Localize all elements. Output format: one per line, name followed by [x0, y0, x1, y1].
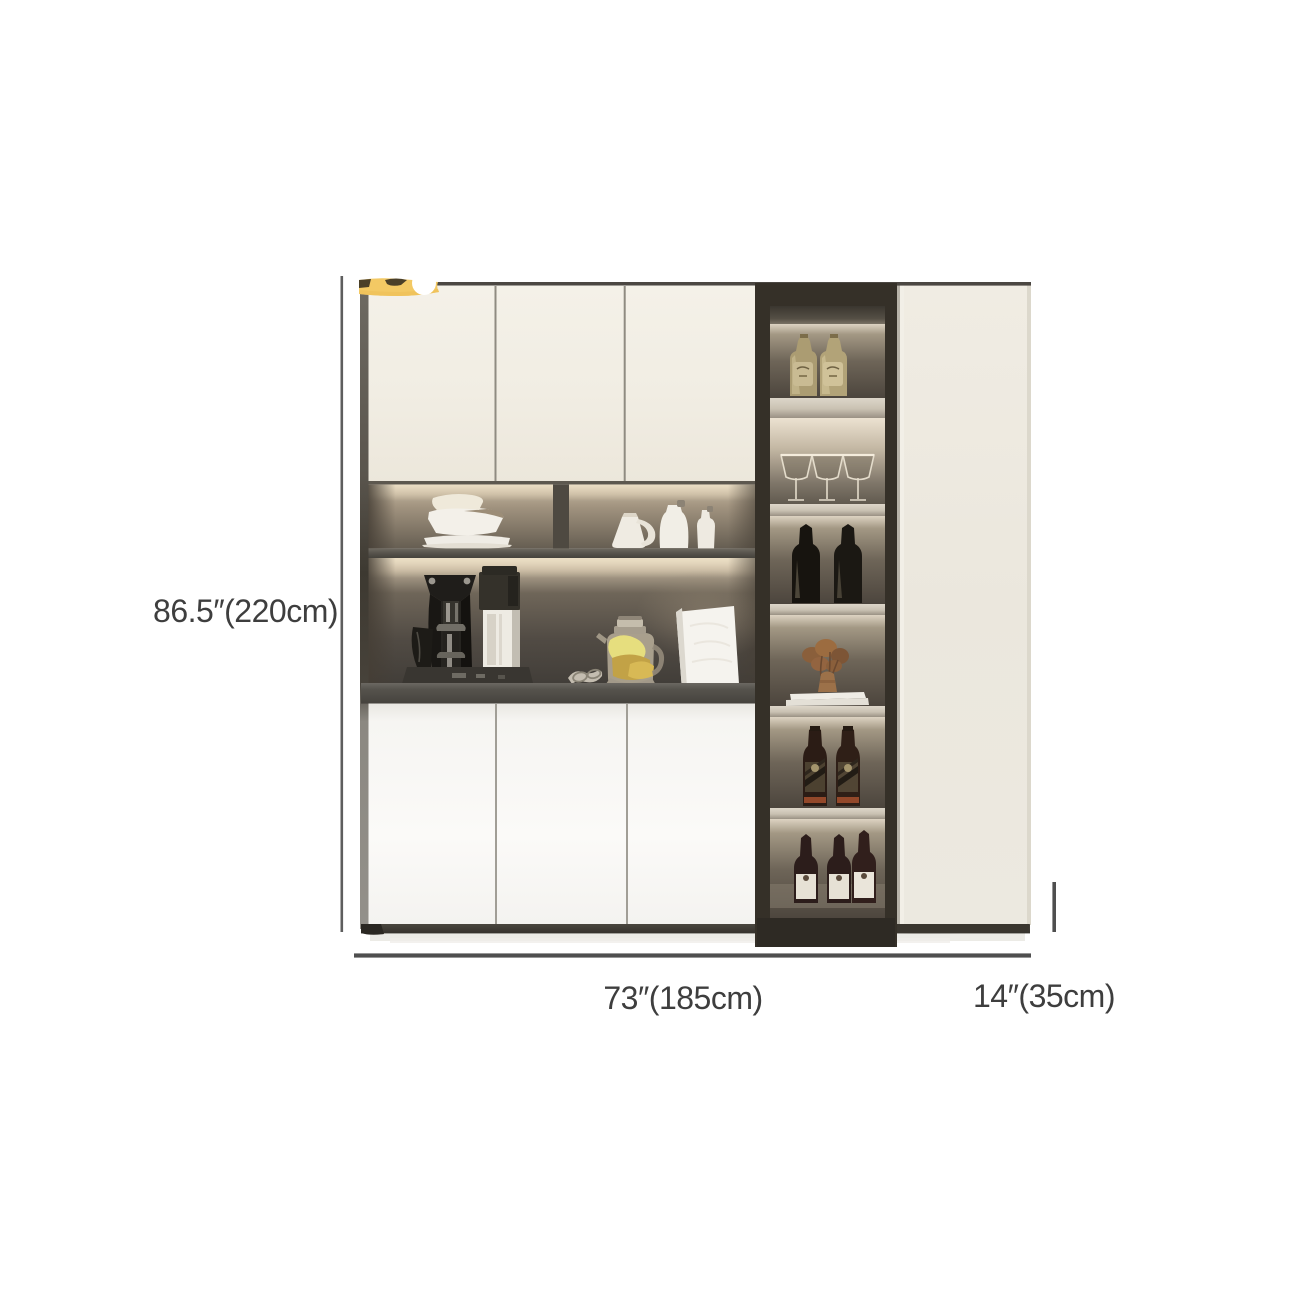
svg-text:86.5″(220cm): 86.5″(220cm): [153, 593, 338, 629]
svg-text:14″(35cm): 14″(35cm): [973, 978, 1115, 1014]
svg-text:73″(185cm): 73″(185cm): [603, 980, 762, 1016]
